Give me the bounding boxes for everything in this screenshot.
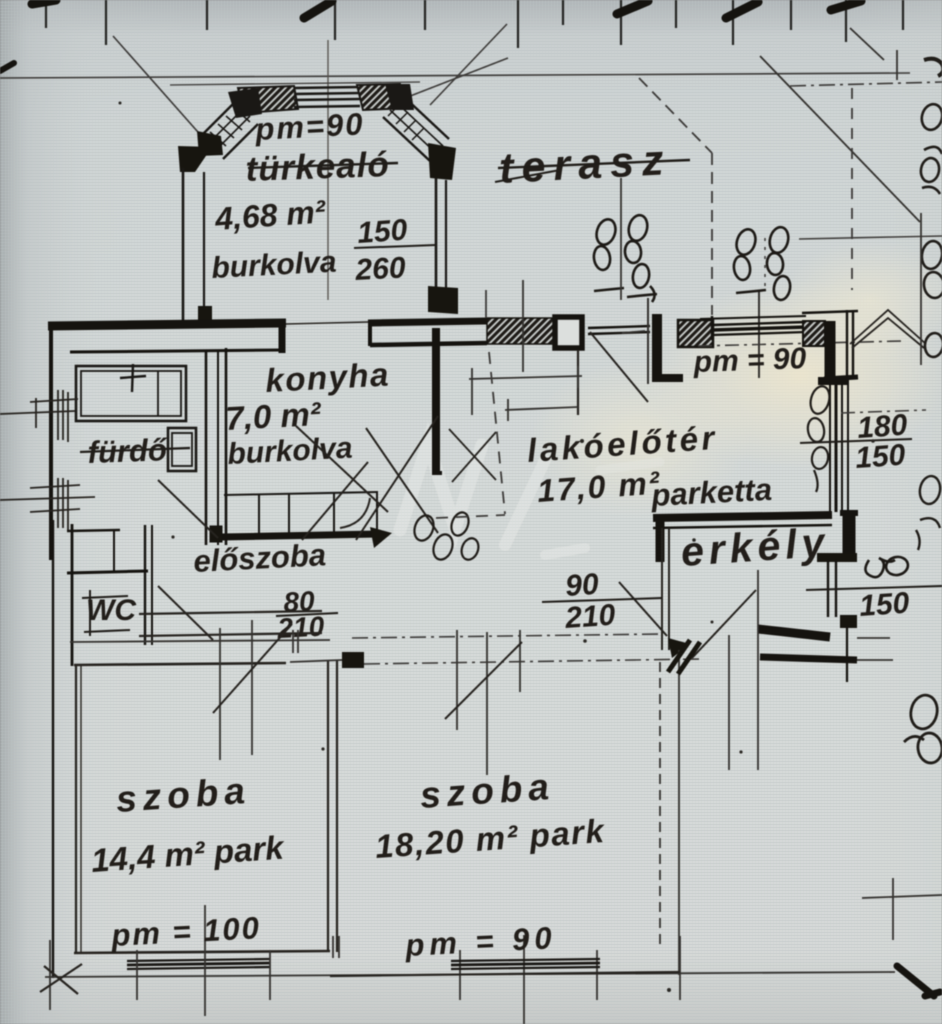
svg-text:150: 150 [356,214,409,250]
svg-text:pm=90: pm=90 [254,106,366,147]
svg-text:150: 150 [858,587,911,623]
svg-text:90: 90 [564,568,600,603]
svg-text:parketta: parketta [650,472,773,513]
svg-text:210: 210 [563,599,617,636]
svg-text:burkolva: burkolva [211,245,338,284]
svg-text:konyha: konyha [264,356,390,399]
svg-text:előszoba: előszoba [193,537,327,579]
svg-text:pm = 90: pm = 90 [692,342,807,379]
svg-text:7,0 m²: 7,0 m² [224,395,322,437]
svg-text:260: 260 [354,251,407,287]
svg-text:WC: WC [86,594,137,627]
svg-text:burkolva: burkolva [227,431,354,470]
svg-text:150: 150 [854,439,907,475]
svg-text:210: 210 [276,611,326,644]
